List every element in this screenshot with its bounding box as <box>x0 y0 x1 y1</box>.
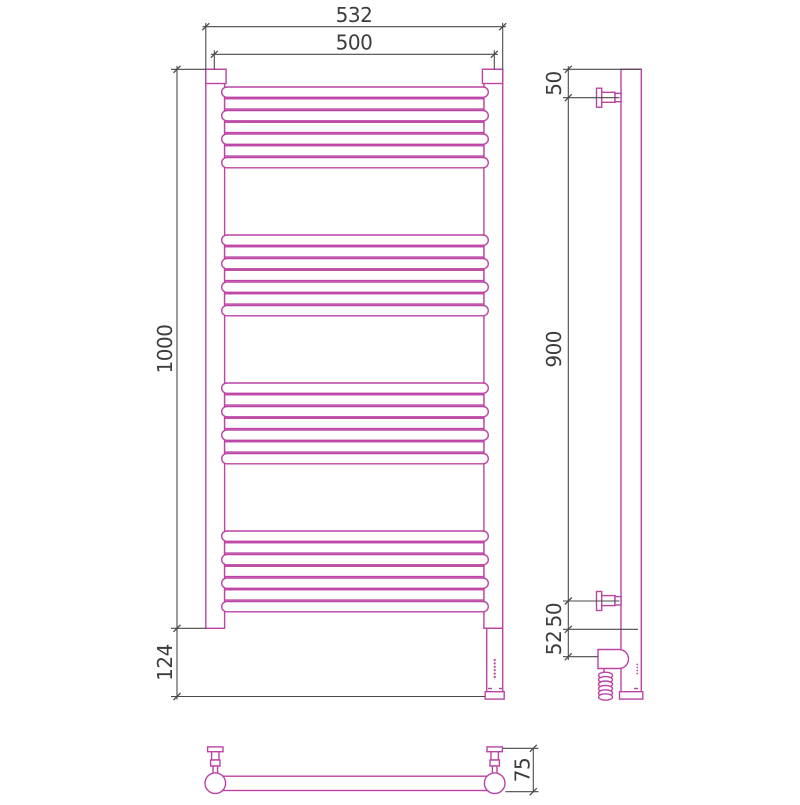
plan-bracket-left <box>208 747 223 773</box>
rung-back <box>225 99 484 109</box>
rung <box>222 259 489 269</box>
dim-label-900: 900 <box>542 331 566 368</box>
dim-front-rung-width: 500 <box>211 31 498 70</box>
rung-group-2 <box>222 235 489 316</box>
plan-rung-bar <box>215 776 494 790</box>
heater-box <box>598 650 629 669</box>
right-collector-tube <box>484 69 503 628</box>
front-view <box>206 69 504 699</box>
dim-label-52: 52 <box>542 631 566 655</box>
rung-back <box>225 270 484 280</box>
dim-label-500: 500 <box>336 31 373 55</box>
dim-label-75: 75 <box>511 758 535 782</box>
bracket-collar <box>490 760 499 766</box>
rung-back <box>225 418 484 428</box>
rung <box>222 134 489 144</box>
left-collector-collar <box>206 69 226 83</box>
bracket-body <box>491 752 498 760</box>
rung <box>222 111 489 121</box>
rung <box>222 306 489 316</box>
rung <box>222 602 489 612</box>
rung <box>222 87 489 97</box>
bracket-flange <box>208 747 223 752</box>
dim-front-height: 1000 <box>153 66 206 632</box>
dim-label-124: 124 <box>153 644 177 681</box>
plan-bracket-right <box>487 747 502 773</box>
rung-back <box>225 294 484 304</box>
bracket-collar <box>211 760 220 766</box>
dim-plan-depth: 75 <box>503 745 539 795</box>
dim-label-1000: 1000 <box>153 325 177 374</box>
rung <box>222 430 489 440</box>
rung-back <box>225 247 484 257</box>
side-foot <box>620 692 643 699</box>
side-profile-bar <box>621 69 641 691</box>
rung <box>222 383 489 393</box>
rung-group-1 <box>222 87 489 168</box>
cord-coil <box>599 672 613 700</box>
rung-back <box>225 543 484 553</box>
rung <box>222 158 489 168</box>
plan-left-collector <box>205 773 226 794</box>
dim-label-50-bottom: 50 <box>542 603 566 627</box>
rung <box>222 578 489 588</box>
plan-right-collector <box>484 773 505 794</box>
dim-label-532: 532 <box>336 3 373 27</box>
rung <box>222 454 489 464</box>
top-view <box>205 747 505 794</box>
heater-housing-foot <box>485 692 504 699</box>
rung <box>222 235 489 245</box>
heater-housing-front <box>485 628 504 699</box>
rung-back <box>225 146 484 156</box>
bracket-neck <box>492 766 497 773</box>
bracket-neck <box>213 766 218 773</box>
rung-back <box>225 566 484 576</box>
dim-label-50-top: 50 <box>542 71 566 95</box>
rung-group-3 <box>222 383 489 464</box>
rung <box>222 531 489 541</box>
rung-back <box>225 122 484 132</box>
towel-rail-drawing: 532 500 1000 124 <box>0 0 800 800</box>
right-collector-collar <box>482 69 502 83</box>
technical-drawing-page: 532 500 1000 124 <box>0 0 800 800</box>
rung <box>222 282 489 292</box>
bracket-body <box>212 752 219 760</box>
left-collector-tube <box>206 69 225 628</box>
rung-back <box>225 590 484 600</box>
rung <box>222 407 489 417</box>
side-view <box>597 69 643 700</box>
bracket-flange <box>487 747 502 752</box>
rung-group-4 <box>222 531 489 612</box>
rung-back <box>225 395 484 405</box>
rung-back <box>225 442 484 452</box>
rung <box>222 555 489 565</box>
dim-front-heater-drop: 124 <box>153 628 485 700</box>
